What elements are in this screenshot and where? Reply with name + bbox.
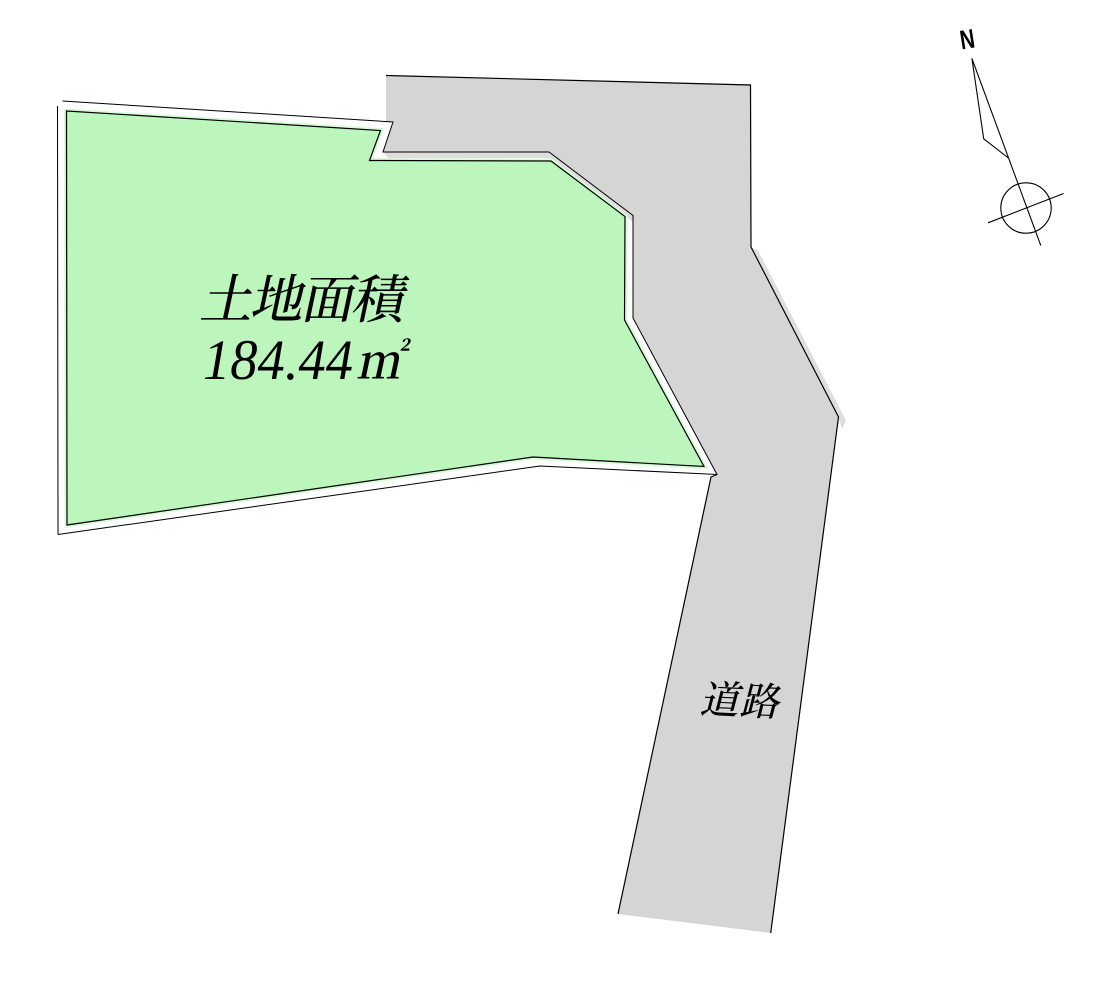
svg-text:N: N	[958, 24, 977, 56]
svg-text:184.44: 184.44	[203, 329, 353, 392]
